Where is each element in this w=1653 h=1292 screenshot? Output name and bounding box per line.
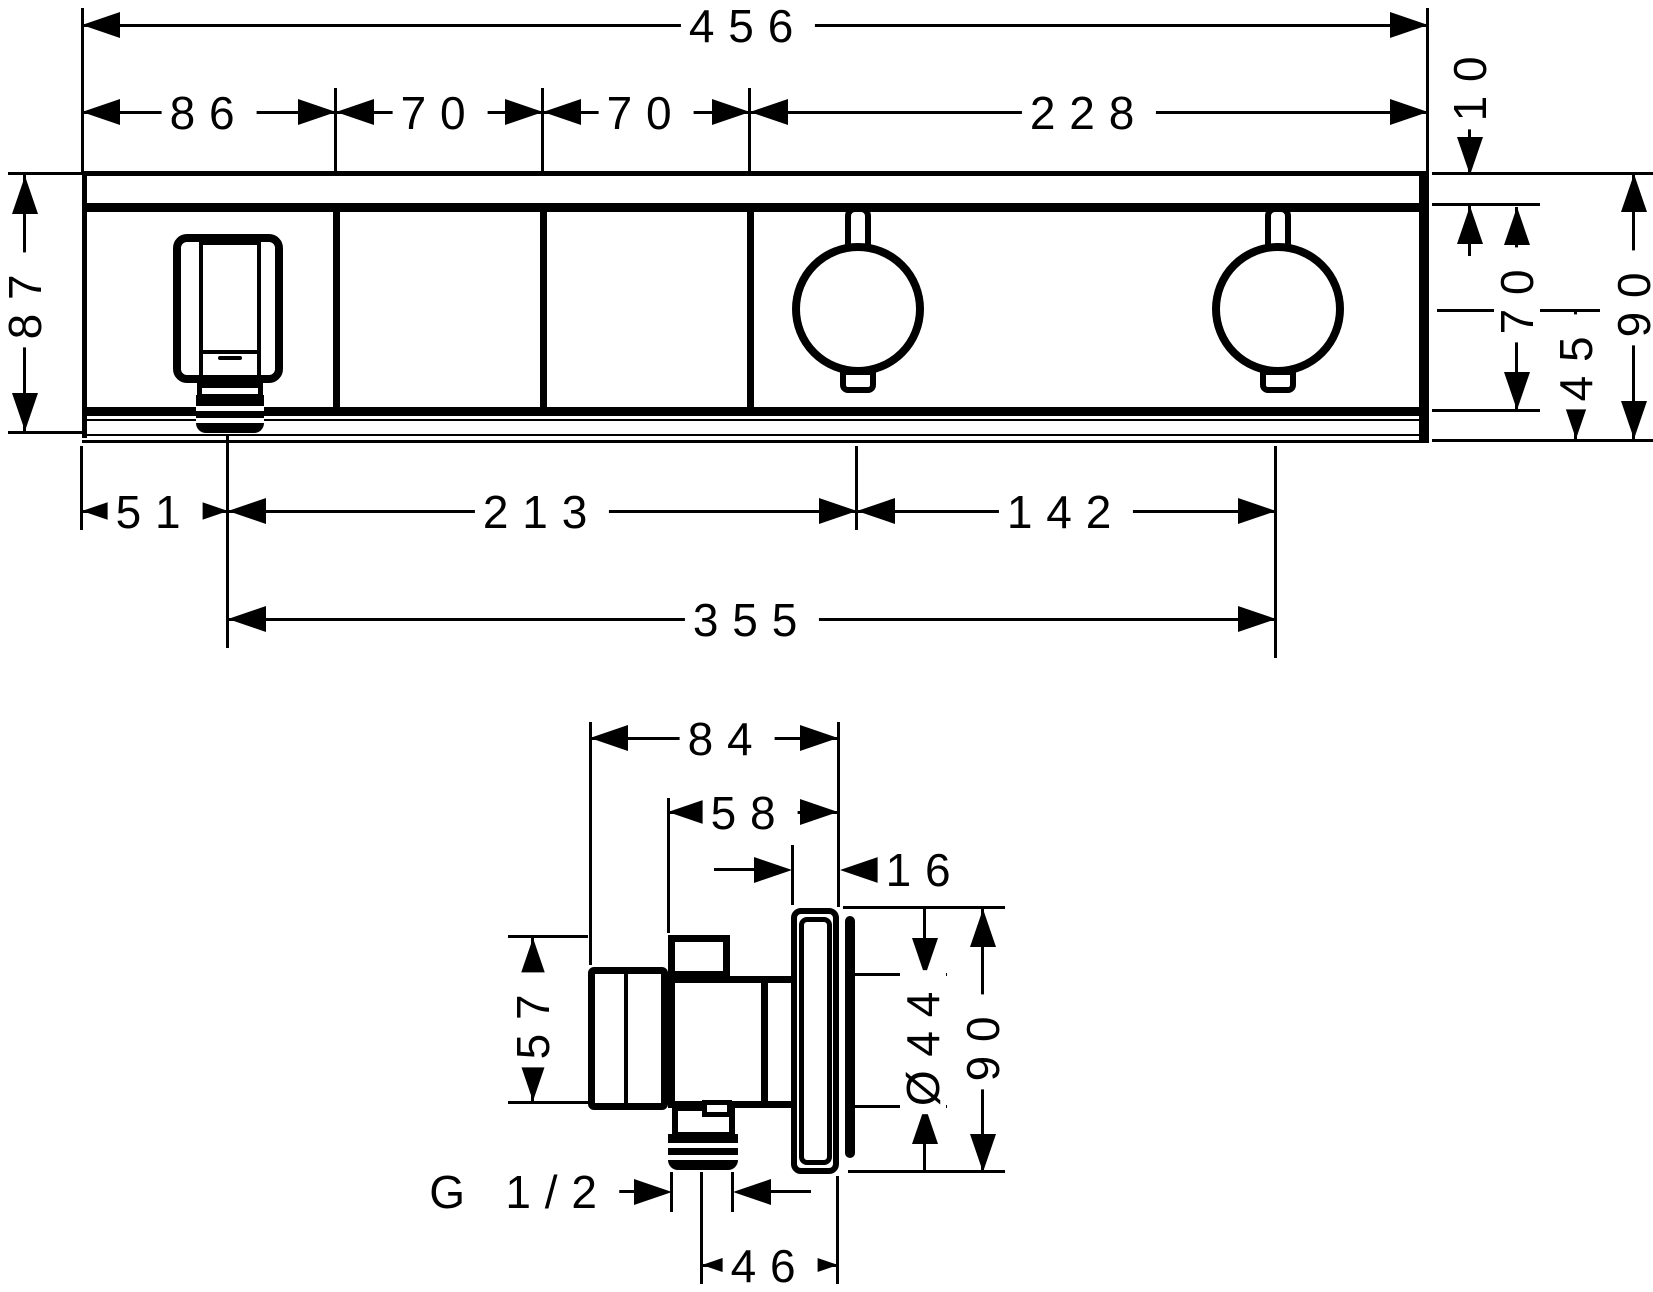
union-nut-facet-line	[624, 971, 628, 1106]
dim-escutcheon-height-label: 90	[960, 995, 1006, 1090]
dim-overall-height-label: 87	[2, 253, 48, 348]
extension-line	[1432, 203, 1540, 206]
dim-segment-b-label: 70	[393, 90, 488, 136]
dim-axis-to-wall-plate-label: 46	[723, 1243, 818, 1289]
dim-segment-c-label: 70	[599, 90, 694, 136]
arrow-down-icon	[520, 1063, 546, 1101]
control-knob-1	[792, 243, 924, 375]
dim-body-height-label: 57	[510, 973, 556, 1068]
control-knob-2	[1212, 243, 1344, 375]
dim-segment-a-label: 86	[162, 90, 257, 136]
dim-escutcheon-diameter-label: Ø44	[900, 970, 946, 1114]
dim-escutcheon-depth-label: 16	[878, 847, 973, 893]
arrow-right-icon	[800, 725, 838, 751]
arrow-down-icon	[1457, 137, 1483, 175]
arrow-left-icon	[82, 12, 120, 38]
panel-bottom-thin-line	[87, 419, 1419, 421]
arrow-left-icon	[228, 498, 266, 524]
union-nut	[588, 967, 668, 1110]
arrow-right-icon	[1238, 498, 1276, 524]
outlet-thread-groove	[196, 406, 264, 411]
arrow-right-icon	[505, 99, 543, 125]
dim-end-height-label: 90	[1611, 251, 1653, 346]
dim-knob-axis-to-bottom-label: 45	[1553, 315, 1599, 410]
arrow-left-icon	[668, 799, 706, 825]
outlet-thread	[196, 395, 264, 433]
panel-divider	[333, 212, 340, 407]
panel-bottom-edge	[82, 440, 1429, 443]
dim-line	[771, 1190, 811, 1193]
arrow-left-icon	[336, 99, 374, 125]
handle-inner-line	[199, 241, 261, 245]
arrow-up-icon	[1621, 174, 1647, 212]
extension-line	[8, 431, 82, 434]
dim-overall-depth-label: 84	[680, 716, 775, 762]
arrow-right-icon	[1390, 99, 1428, 125]
panel-divider	[747, 212, 754, 407]
handle-inner-line	[199, 241, 203, 377]
arrow-left-icon	[228, 606, 266, 632]
wall-seal-bar	[845, 916, 855, 1158]
arrow-left-icon	[857, 498, 895, 524]
arrow-right-icon	[298, 99, 336, 125]
handle-inner-line	[257, 241, 261, 377]
panel-bottom-thin-line	[82, 434, 1428, 436]
step-notch	[702, 1100, 732, 1117]
panel-inner-top-line	[87, 203, 1419, 212]
dim-line	[1468, 206, 1471, 256]
handle-inner-line	[199, 350, 261, 354]
panel-inner-bottom-line	[87, 407, 1419, 416]
arrow-left-icon	[82, 99, 120, 125]
dim-inner-height-label: 70	[1494, 248, 1540, 343]
arrow-down-icon	[1621, 401, 1647, 439]
outlet-thread-groove	[196, 418, 264, 423]
arrow-left-icon	[840, 857, 878, 883]
arrow-down-icon	[1504, 372, 1530, 410]
dim-top-strip-label: 10	[1447, 35, 1493, 130]
arrow-left-icon	[543, 99, 581, 125]
arrow-right-icon	[800, 799, 838, 825]
extension-line	[589, 722, 592, 965]
dim-outlet-offset-label: 51	[108, 489, 203, 535]
extension-line	[1432, 439, 1653, 442]
arrow-right-icon	[819, 498, 857, 524]
arrow-left-icon	[733, 1179, 771, 1205]
arrow-right-icon	[754, 857, 792, 883]
extension-line	[8, 172, 82, 175]
drawing-canvas: 456 86 70 70 228 10	[0, 0, 1653, 1292]
arrow-right-icon	[712, 99, 750, 125]
dim-outlet-to-first-knob-label: 213	[475, 489, 609, 535]
arrow-up-icon	[520, 938, 546, 976]
dim-segment-d-label: 228	[1022, 90, 1156, 136]
dim-connection-thread-label: G 1/2	[421, 1169, 619, 1215]
top-port	[668, 935, 730, 978]
dim-outlet-to-second-knob-label: 355	[685, 597, 819, 643]
dim-body-depth-label: 58	[703, 790, 798, 836]
arrow-left-icon	[590, 725, 628, 751]
arrow-right-icon	[1238, 606, 1276, 632]
dim-total-width-label: 456	[681, 3, 815, 49]
dim-line	[714, 868, 756, 871]
arrow-left-icon	[750, 99, 788, 125]
bottom-thread-groove	[668, 1155, 738, 1160]
arrow-right-icon	[634, 1179, 672, 1205]
panel-right-cap	[1419, 171, 1429, 443]
extension-line	[508, 1101, 588, 1104]
wall-escutcheon-inner	[799, 917, 832, 1165]
arrow-down-icon	[12, 393, 38, 431]
dim-knob-spacing-label: 142	[999, 489, 1133, 535]
arrow-up-icon	[12, 176, 38, 214]
arrow-up-icon	[970, 909, 996, 947]
panel-divider	[540, 212, 547, 407]
arrow-up-icon	[1504, 207, 1530, 245]
diverter-handle	[173, 234, 283, 383]
bottom-thread	[668, 1134, 738, 1170]
valve-body	[668, 976, 768, 1108]
panel-top-edge	[82, 171, 1428, 176]
arrow-down-icon	[970, 1134, 996, 1172]
bottom-thread-groove	[668, 1143, 738, 1148]
arrow-right-icon	[1390, 12, 1428, 38]
handle-grip-notch	[218, 356, 242, 360]
